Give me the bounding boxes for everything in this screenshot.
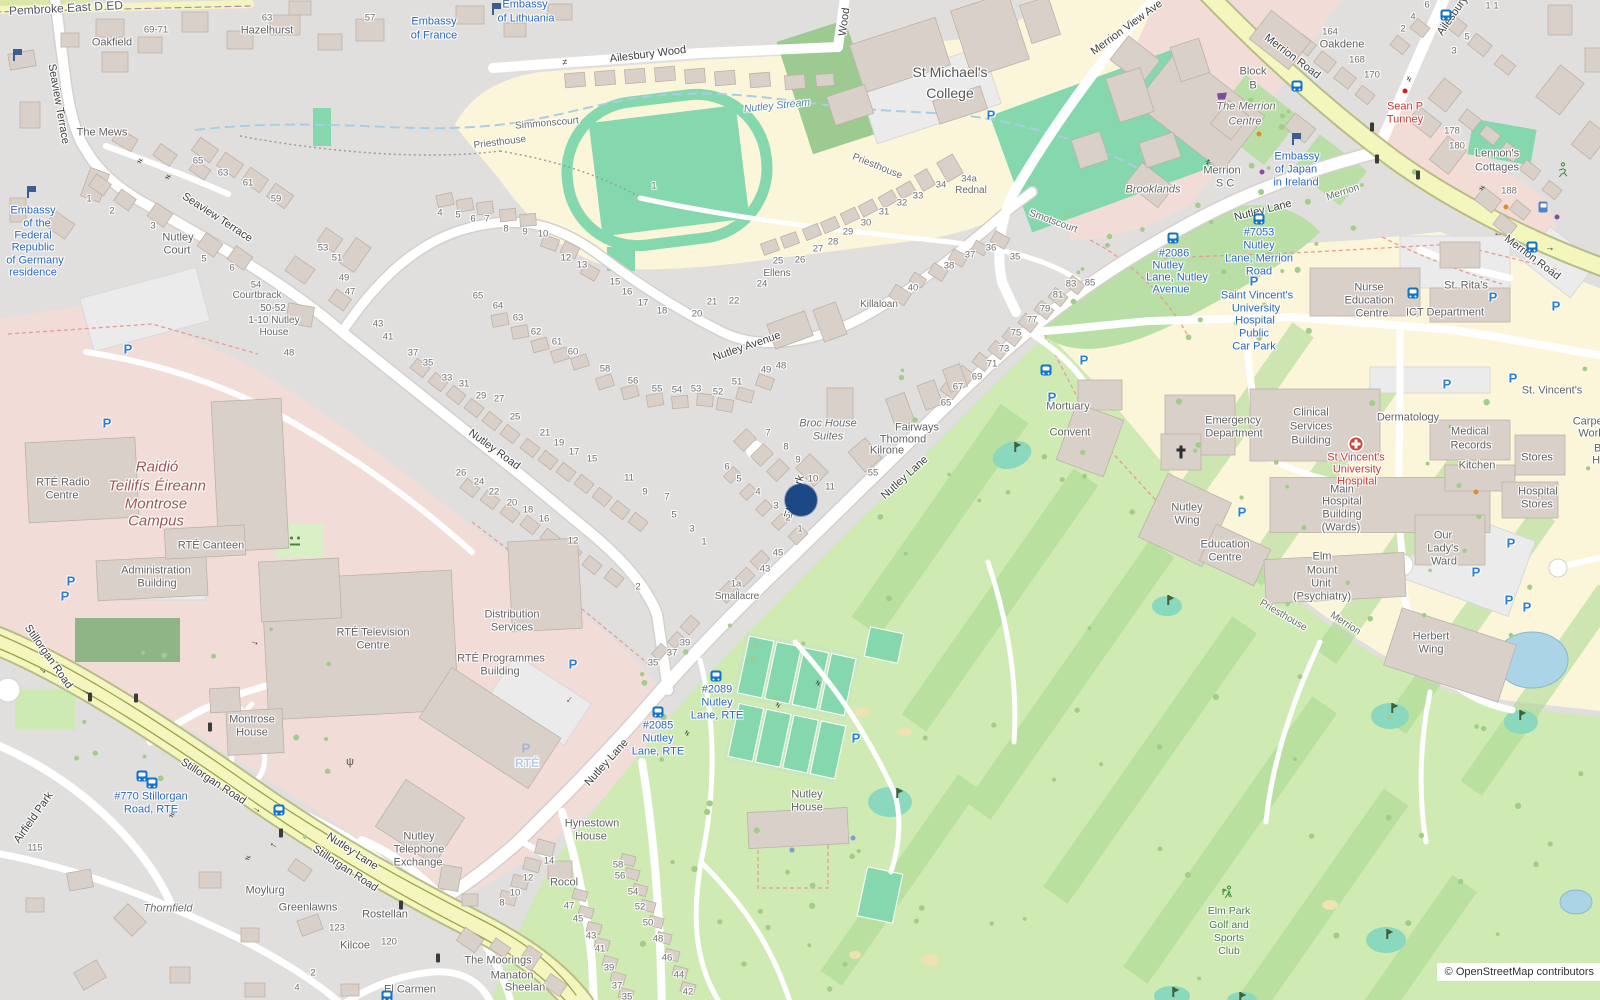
- house-number-label: 5: [1464, 32, 1469, 42]
- house-number-label: 60: [568, 347, 579, 357]
- bus-stop-icon: [1254, 214, 1265, 225]
- map-label: Nutley: [1171, 503, 1202, 514]
- map-label: Manaton: [491, 971, 534, 982]
- map-label: Stores: [1521, 500, 1553, 511]
- map-label: Centre: [1355, 309, 1388, 320]
- parking-icon: P: [1552, 299, 1561, 314]
- building: [456, 6, 484, 24]
- bus-stop-icon: [1292, 81, 1303, 92]
- map-label: Lane, Merrion: [1225, 254, 1293, 265]
- playground-icon: [290, 537, 300, 546]
- house-number-label: 7: [765, 428, 770, 438]
- house-number-label: 5: [455, 210, 460, 220]
- tree-dot: [74, 756, 79, 761]
- house-number-label: 26: [456, 468, 467, 478]
- house-number-label: 43: [760, 564, 771, 574]
- house-number-label: 1: [701, 537, 706, 547]
- bus-stop-icon: [711, 671, 722, 682]
- house-number-label: 35: [622, 992, 633, 1000]
- tree-dot: [1462, 548, 1466, 552]
- map-label: The Moorings: [464, 956, 531, 967]
- golf-hole-flag-icon: [1014, 442, 1016, 452]
- house-number-label: 5: [201, 254, 206, 264]
- house-number-label: 20: [692, 309, 703, 319]
- map-label: Sean P: [1387, 102, 1423, 113]
- map-label: Golf and: [1209, 920, 1249, 931]
- osm-attribution[interactable]: © OpenStreetMap contributors: [1437, 963, 1600, 981]
- bus-stop-icon: [1441, 10, 1452, 21]
- house-number-label: 188: [1501, 186, 1517, 196]
- blue-poi-dot: [851, 836, 856, 841]
- building: [491, 313, 509, 328]
- building: [520, 213, 537, 226]
- house-number-label: 123: [329, 923, 345, 933]
- map-label: Saint Vincent's: [1221, 291, 1293, 302]
- house-number-label: 15: [610, 277, 621, 287]
- building: [26, 898, 44, 912]
- house-number-label: 21: [707, 297, 718, 307]
- tree-dot: [1195, 202, 1201, 208]
- house-number-label: 47: [345, 287, 356, 297]
- tree-dot: [1099, 762, 1103, 766]
- purple-poi-dot: [1260, 170, 1265, 175]
- house-number-label: 4: [1410, 12, 1415, 22]
- map-label: Kitchen: [1459, 461, 1496, 472]
- house-number-label: 48: [653, 934, 664, 944]
- tree-dot: [1209, 220, 1213, 224]
- tree-dot: [842, 962, 847, 967]
- house-number-label: 73: [999, 344, 1010, 354]
- house-number-label: 42: [683, 987, 694, 997]
- map-label: Nutley: [642, 734, 673, 745]
- house-number-label: 4: [294, 983, 299, 993]
- map-label: Telephone: [394, 845, 445, 856]
- house-number-label: 38: [944, 261, 955, 271]
- tree-dot: [707, 800, 713, 806]
- house-number-label: 53: [318, 243, 329, 253]
- tree-dot: [1042, 454, 1047, 459]
- house-number-label: 67: [953, 382, 964, 392]
- map-label: Merrion: [1203, 166, 1240, 177]
- tree-dot: [1295, 267, 1301, 273]
- house-number-label: 48: [776, 361, 787, 371]
- house-number-label: 52: [635, 902, 646, 912]
- house-number-label: 11: [825, 482, 835, 492]
- tree-dot: [1578, 771, 1583, 776]
- tree-dot: [1515, 803, 1521, 809]
- tree-dot: [1267, 166, 1271, 170]
- tree-dot: [1140, 227, 1145, 232]
- map-label: Hazelhurst: [241, 26, 294, 37]
- map-label: Hospital: [1322, 497, 1362, 508]
- hospital-cross-icon: [1348, 436, 1365, 453]
- tree-dot: [904, 552, 908, 556]
- tree-dot: [1193, 449, 1197, 453]
- house-number-label: 15: [587, 454, 598, 464]
- building: [182, 12, 208, 32]
- bus-stop-icon: [653, 707, 664, 718]
- map-label: Our: [1434, 531, 1452, 542]
- map-viewport[interactable]: Pembroke East D EDOakfieldHazelhurstEmba…: [0, 0, 1600, 1000]
- parking-icon: P: [1238, 505, 1247, 520]
- house-number-label: 69: [972, 372, 983, 382]
- parking-icon: P: [1523, 600, 1532, 615]
- tree-dot: [1548, 841, 1553, 846]
- house-number-label: 8: [499, 898, 504, 908]
- map-label: Cottages: [1475, 163, 1519, 174]
- bus-stop-icon: [1041, 365, 1052, 376]
- map-label: Services: [1290, 422, 1332, 433]
- house-number-label: 7: [664, 492, 669, 502]
- tree-dot: [923, 735, 928, 740]
- parking-icon: P: [1443, 377, 1452, 392]
- tree-dot: [1419, 833, 1424, 838]
- map-label: RTÉ Canteen: [178, 541, 244, 552]
- map-label: Building: [137, 579, 176, 590]
- map-label: Centre: [45, 491, 78, 502]
- tree-dot: [1280, 269, 1284, 273]
- map-label: Building: [1291, 436, 1330, 447]
- map-label: University: [1333, 465, 1381, 476]
- tree-dot: [1198, 317, 1203, 322]
- house-number-label: 16: [539, 514, 550, 524]
- parking-icon: P: [1048, 390, 1057, 405]
- house-number-label: 10: [808, 474, 819, 484]
- tree-dot: [857, 849, 861, 853]
- house-number-label: 85: [1085, 278, 1096, 288]
- tree-dot: [850, 853, 856, 859]
- map-label: Rocol: [550, 878, 578, 889]
- map-label: Stores: [1521, 453, 1553, 464]
- house-number-label: 39: [604, 963, 615, 973]
- golf-hole-flag-icon: [1519, 710, 1521, 720]
- house-number-label: 61: [243, 178, 254, 188]
- traffic-signal-icon: [436, 954, 440, 963]
- parking-icon: P: [103, 416, 112, 431]
- orange-poi-dot: [1257, 132, 1262, 137]
- map-label: Moylurg: [245, 886, 284, 897]
- map-label: of France: [411, 31, 457, 42]
- map-label: Herbert: [1413, 632, 1450, 643]
- map-label: Wing: [1174, 516, 1199, 527]
- location-marker[interactable]: [785, 484, 817, 516]
- building: [241, 928, 259, 942]
- building: [511, 325, 529, 340]
- house-number-label: 75: [1011, 328, 1022, 338]
- house-number-label: 58: [600, 364, 611, 374]
- tree-dot: [919, 905, 925, 911]
- house-number-label: 63: [262, 13, 273, 23]
- building: [289, 1, 311, 15]
- map-label: Kilcoe: [340, 941, 370, 952]
- tree-dot: [990, 921, 995, 926]
- tree-dot: [877, 514, 883, 520]
- house-number-label: 53: [691, 384, 702, 394]
- map-label: Emergency: [1205, 416, 1261, 427]
- tree-dot: [1426, 462, 1430, 466]
- house-number-label: 1: [651, 181, 656, 191]
- golf-hole-flag-icon: [1391, 703, 1393, 713]
- map-label: St Michael's: [912, 65, 987, 79]
- house-number-label: 65: [941, 398, 952, 408]
- tree-dot: [1197, 977, 1201, 981]
- traffic-signal-icon: [1375, 155, 1379, 164]
- house-number-label: 46: [662, 953, 673, 963]
- house-number-label: 1 1: [1485, 1, 1498, 11]
- house-number-label: 20: [507, 498, 518, 508]
- tree-dot: [640, 672, 644, 676]
- embassy-flag-icon: [13, 49, 23, 61]
- map-label: (Psychiatry): [1293, 592, 1351, 603]
- tree-dot: [1080, 450, 1085, 455]
- orange-poi-dot: [1474, 490, 1479, 495]
- tree-dot: [326, 662, 331, 667]
- house-number-label: 3: [773, 501, 778, 511]
- tree-dot: [1509, 633, 1514, 638]
- parking-icon: P: [1080, 353, 1089, 368]
- map-label: Centre: [1228, 117, 1261, 128]
- map-label: Lennon's: [1475, 149, 1519, 160]
- house-number-label: 29: [843, 227, 854, 237]
- house-number-label: 33: [913, 191, 924, 201]
- house-number-label: 22: [729, 296, 740, 306]
- building: [462, 894, 478, 906]
- house-number-label: 43: [373, 319, 384, 329]
- house-number-label: 54: [628, 887, 639, 897]
- map-label: in Ireland: [1273, 178, 1318, 189]
- tree-dot: [785, 870, 790, 875]
- house-number-label: 71: [987, 359, 998, 369]
- tree-dot: [754, 827, 760, 833]
- house-number-label: 24: [474, 477, 485, 487]
- map-label: Embassy: [1274, 152, 1319, 163]
- house-number-label: 63: [218, 168, 229, 178]
- house-number-label: 3: [1451, 46, 1456, 56]
- map-label: St Vincent's: [1327, 453, 1385, 464]
- tree-dot: [1483, 399, 1489, 405]
- house-number-label: 2: [109, 206, 114, 216]
- map-label: Services: [491, 623, 533, 634]
- map-label: Oakfield: [92, 38, 132, 49]
- house-number-label: 51: [332, 253, 343, 263]
- house-number-label: 41: [595, 944, 606, 954]
- map-label: S C: [1216, 179, 1234, 190]
- tree-dot: [1279, 124, 1285, 130]
- map-label: Public: [1239, 329, 1269, 340]
- building: [816, 73, 835, 87]
- map-label: Embassy: [502, 0, 547, 11]
- house-number-label: 51: [732, 377, 743, 387]
- map-label: Building: [480, 667, 519, 678]
- map-label: RTÉ: [515, 757, 539, 769]
- building: [697, 393, 714, 406]
- tree-dot: [1314, 242, 1318, 246]
- map-label: Thornfield: [144, 904, 193, 915]
- house-number-label: 120: [381, 937, 397, 947]
- building: [684, 68, 705, 84]
- building: [716, 398, 734, 413]
- tree-dot: [670, 860, 674, 864]
- house-number-label: 30: [861, 218, 872, 228]
- map-label: 50-52: [260, 304, 286, 314]
- map-label: Hospital: [1518, 487, 1558, 498]
- parking-icon: P: [124, 342, 133, 357]
- tree-dot: [1387, 715, 1392, 720]
- house-number-label: 180: [1449, 141, 1465, 151]
- map-label: (Wards): [1322, 523, 1361, 534]
- house-number-label: 49: [339, 273, 350, 283]
- building: [784, 74, 805, 90]
- building: [61, 33, 79, 47]
- house-number-label: 11: [624, 473, 634, 483]
- map-label: Ward: [1431, 557, 1457, 568]
- house-number-label: 34: [936, 180, 947, 190]
- bus-stop-icon: [1168, 233, 1179, 244]
- map-label: Kilrone: [870, 446, 904, 457]
- house-number-label: 58: [613, 860, 624, 870]
- traffic-signal-icon: [279, 829, 283, 838]
- map-label: Boiler: [1594, 444, 1600, 455]
- tree-dot: [1221, 269, 1226, 274]
- map-label: Lane, RTE: [691, 711, 743, 722]
- house-number-label: 32: [897, 198, 908, 208]
- house-number-label: 5: [671, 510, 676, 520]
- house-number-label: 45: [573, 914, 584, 924]
- house-number-label: 17: [569, 447, 580, 457]
- map-label: Nutley: [162, 233, 193, 244]
- house-number-label: 55: [868, 468, 879, 478]
- parking-icon: P: [852, 731, 861, 746]
- tree-dot: [750, 656, 755, 661]
- tree-dot: [1075, 708, 1080, 713]
- house-number-label: 170: [1364, 70, 1380, 80]
- house-number-label: 2: [1400, 24, 1405, 34]
- map-label: 1-10 Nutley: [248, 316, 299, 326]
- map-label: Embassy: [411, 17, 456, 28]
- bus-stop-icon: [1527, 242, 1538, 253]
- house-number-label: 7: [484, 214, 489, 224]
- house-number-label: 54: [251, 280, 262, 290]
- map-label: Brooklands: [1125, 185, 1180, 196]
- tree-dot: [914, 919, 919, 924]
- map-label: Distribution: [484, 610, 539, 621]
- building: [170, 967, 190, 983]
- map-label: Montrose: [125, 497, 188, 512]
- house-number-label: 6: [724, 462, 729, 472]
- map-label: Nutley: [1152, 261, 1183, 272]
- embassy-flag-icon: [27, 186, 37, 198]
- house-number-label: 57: [365, 13, 376, 23]
- house-number-label: 13: [577, 260, 588, 270]
- tree-dot: [1060, 477, 1065, 482]
- tree-dot: [683, 649, 688, 654]
- red-poi-dot: [1403, 89, 1408, 94]
- tree-dot: [1239, 495, 1243, 499]
- map-label: House: [575, 832, 607, 843]
- house-number-label: 83: [1066, 279, 1077, 289]
- tree-dot: [1481, 726, 1486, 731]
- house-number-label: 81: [1053, 290, 1064, 300]
- map-label: Lady's: [1427, 544, 1458, 555]
- house-number-label: 10: [538, 229, 549, 239]
- map-label: Hynestown: [565, 819, 619, 830]
- building: [318, 34, 342, 50]
- golf-hole-flag-icon: [1172, 987, 1174, 997]
- house-number-label: 77: [1027, 315, 1038, 325]
- map-label: Rostellan: [362, 910, 408, 921]
- purple-poi-dot: [1555, 215, 1560, 220]
- embassy-flag-icon: [492, 3, 502, 15]
- house-number-label: 17: [638, 298, 649, 308]
- map-label: Nurse: [1354, 283, 1383, 294]
- map-label: Oakdene: [1320, 40, 1365, 51]
- map-label: Greenlawns: [279, 903, 338, 914]
- tree-dot: [303, 835, 307, 839]
- tree-dot: [1301, 525, 1306, 530]
- house-number-label: 37: [408, 348, 419, 358]
- building: [67, 869, 94, 891]
- tree-dot: [1195, 442, 1201, 448]
- tree-dot: [1333, 932, 1339, 938]
- tree-dot: [1305, 199, 1311, 205]
- map-label: Dermatology: [1377, 413, 1439, 424]
- map-label: of the: [23, 219, 51, 230]
- map-label: of Lithuania: [498, 14, 555, 25]
- map-label: Nutley: [403, 832, 434, 843]
- map-label: Department: [1205, 429, 1262, 440]
- house-number-label: 4: [755, 487, 760, 497]
- map-label: Records: [1451, 441, 1492, 452]
- oneway-arrow-icon: →: [1493, 229, 1504, 241]
- house-number-label: 79: [1040, 304, 1051, 314]
- house-number-label: 41: [383, 332, 394, 342]
- building: [20, 102, 40, 128]
- tree-dot: [691, 866, 697, 872]
- tree-dot: [1360, 183, 1364, 187]
- house-number-label: 178: [1444, 126, 1460, 136]
- house-number-label: 18: [657, 306, 668, 316]
- house-number-label: 35: [648, 658, 659, 668]
- map-label: of Germany: [6, 256, 63, 267]
- house-number-label: 4: [437, 208, 442, 218]
- building: [341, 984, 359, 996]
- traffic-signal-icon: [1370, 123, 1374, 132]
- building: [102, 52, 128, 72]
- tree-dot: [947, 473, 951, 477]
- house-number-label: 3: [689, 524, 694, 534]
- house-number-label: 1: [86, 194, 91, 204]
- tree-dot: [1369, 400, 1375, 406]
- church-cross-icon: [1180, 446, 1183, 459]
- map-label: B: [1249, 81, 1256, 92]
- map-label: Nutley: [1243, 241, 1274, 252]
- map-label: Medical: [1451, 427, 1489, 438]
- house-number-label: 35: [1010, 252, 1021, 262]
- parking-icon: P: [1489, 290, 1498, 305]
- building: [654, 66, 675, 82]
- map-label: Building: [1322, 510, 1361, 521]
- tree-dot: [642, 680, 648, 686]
- tree-dot: [1474, 724, 1479, 729]
- house-number-label: 115: [27, 843, 42, 853]
- house-number-label: 2: [635, 582, 640, 592]
- building: [1440, 242, 1480, 268]
- tree-dot: [977, 499, 981, 503]
- map-label: Fairways: [895, 423, 939, 434]
- house-number-label: 18: [523, 505, 534, 515]
- house-number-label: 56: [615, 871, 626, 881]
- tree-dot: [1258, 189, 1264, 195]
